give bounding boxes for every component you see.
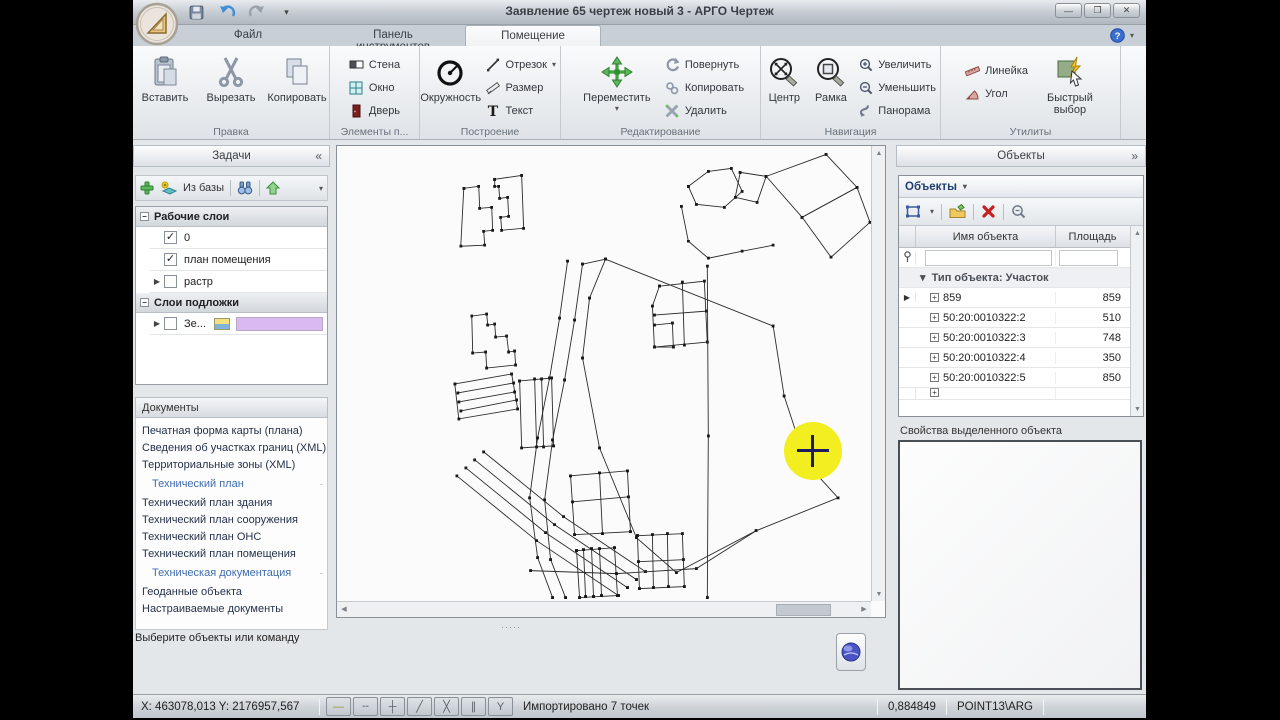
wall-icon [349, 57, 364, 72]
objects-scroll-up[interactable]: ▲ [1131, 226, 1144, 240]
document-item[interactable]: Геоданные объекта [142, 584, 327, 601]
undo-button[interactable] [217, 3, 236, 21]
object-name: 50:20:0010322:2 [943, 312, 1026, 324]
close-button[interactable]: ✕ [1113, 3, 1140, 18]
ribbon-group-nav: Центр Рамка Увеличить Уменьшить [761, 46, 941, 139]
add-from-base-icon[interactable] [160, 181, 177, 196]
scroll-up-arrow[interactable]: ▲ [872, 146, 886, 160]
object-row[interactable]: ▶+859859 [899, 288, 1143, 308]
help-dropdown-icon[interactable]: ▾ [1130, 31, 1134, 40]
edit-object-icon[interactable] [949, 204, 966, 219]
dimension-icon [486, 80, 501, 95]
document-item[interactable]: Технический план помещения [142, 546, 327, 563]
dimension-button[interactable]: Размер [482, 76, 560, 99]
copy-objects-button[interactable]: Копировать [661, 76, 748, 99]
layer-name: Зе... [184, 318, 206, 330]
globe-button[interactable] [836, 633, 866, 671]
circle-button[interactable]: Окружность [420, 49, 482, 104]
angle-button[interactable]: Угол [961, 82, 1032, 105]
door-button[interactable]: Дверь [345, 99, 404, 122]
tab-file[interactable]: Файл [200, 25, 296, 46]
objects-panel: Объекты » Объекты ▾ ▾ Имя объекта Пло [896, 145, 1146, 690]
objects-panel-title: Объекты [997, 150, 1044, 162]
object-group-row[interactable]: ▾ Тип объекта: Участок [899, 268, 1143, 288]
restore-button[interactable]: ❐ [1084, 3, 1111, 18]
copy-icon [281, 52, 313, 92]
object-name: 50:20:0010322:5 [943, 372, 1026, 384]
object-name: 50:20:0010322:3 [943, 332, 1026, 344]
copy-objects-icon [665, 80, 680, 95]
object-name: 859 [943, 292, 961, 304]
zoom-out-button[interactable]: Уменьшить [854, 76, 940, 99]
select-dropdown-icon[interactable]: ▾ [930, 207, 934, 216]
objects-toolbar: ▾ [899, 198, 1143, 226]
cadastral-drawing [337, 146, 872, 601]
zoom-in-icon [858, 57, 873, 72]
screen-background: ▾ Заявление 65 чертеж новый 3 - АРГО Чер… [0, 0, 1280, 720]
ribbon-tab-row: Файл Панель инструментов Помещение ? ▾ [133, 25, 1146, 46]
object-row[interactable]: +50:20:0010322:3748 [899, 328, 1143, 348]
objects-box: Объекты ▾ ▾ Имя объекта Площадь ▾ Тип об… [898, 175, 1144, 417]
command-area: ····· [336, 618, 892, 692]
frame-button[interactable]: Рамка [808, 49, 855, 104]
mode-indicator: POINT13\ARG [953, 701, 1037, 713]
cut-icon [215, 52, 247, 92]
group-label-utils: Утилиты [941, 126, 1120, 138]
frame-icon [815, 52, 847, 92]
rotate-button[interactable]: Повернуть [661, 53, 748, 76]
document-item[interactable]: Настраиваемые документы [142, 601, 327, 618]
svg-text:?: ? [1115, 31, 1121, 42]
group-label-nav: Навигация [761, 126, 940, 138]
document-item[interactable]: Технический план ОНС [142, 529, 327, 546]
filter-name-input[interactable] [925, 250, 1052, 266]
wall-button[interactable]: Стена [345, 53, 404, 76]
window-title: Заявление 65 чертеж новый 3 - АРГО Черте… [253, 4, 1026, 18]
object-area: 748 [1056, 332, 1129, 344]
move-dropdown-icon[interactable]: ▾ [615, 104, 619, 113]
object-area: 859 [1056, 292, 1129, 304]
paste-icon [149, 52, 181, 92]
documents-header[interactable]: Документы [135, 397, 328, 418]
drawing-canvas[interactable]: ▲ ▼ ◀ ▶ [336, 145, 886, 618]
objects-table-header: Имя объекта Площадь [899, 226, 1143, 248]
segment-dropdown-icon[interactable]: ▾ [552, 60, 556, 69]
ruler-button[interactable]: Линейка [961, 59, 1032, 82]
documents-list: Печатная форма карты (плана)Сведения об … [135, 418, 328, 630]
objects-expand-button[interactable]: » [1131, 149, 1138, 163]
ribbon-group-utils: Линейка Угол Быстрый выбор Утилиты [941, 46, 1121, 139]
objects-panel-header: Объекты » [896, 145, 1146, 167]
object-area: 850 [1056, 372, 1129, 384]
expand-plus-icon[interactable]: + [930, 293, 939, 302]
ribbon-group-elements: Стена Окно Дверь Элементы п... [330, 46, 420, 139]
group-label-elements: Элементы п... [330, 126, 419, 138]
copy-button[interactable]: Копировать [265, 49, 329, 104]
layer-row[interactable]: ✓план помещения [150, 249, 327, 271]
app-logo-icon [135, 2, 179, 46]
coordinates-readout: X: 463078,013 Y: 2176957,567 [141, 701, 313, 713]
toolbar-separator [230, 180, 231, 196]
ruler-icon [965, 63, 980, 78]
objects-dropdown-caret: ▾ [963, 182, 967, 191]
minimize-button[interactable]: — [1055, 3, 1082, 18]
expand-plus-icon[interactable]: + [930, 373, 939, 382]
text-icon: T [486, 103, 501, 118]
layer-checkbox[interactable] [164, 275, 177, 288]
tasks-panel: Задачи « Из базы ▾ − Рабочие слои ✓0✓пла… [133, 145, 330, 650]
layer-row[interactable]: ✓0 [150, 227, 327, 249]
status-bar: X: 463078,013 Y: 2176957,567 —╌┼╱╳∥Y Имп… [133, 694, 1146, 718]
snap-toolbar: —╌┼╱╳∥Y [326, 697, 515, 716]
layer-name: 0 [184, 232, 190, 244]
expand-plus-icon[interactable]: + [930, 313, 939, 322]
from-base-button[interactable]: Из базы [183, 182, 224, 194]
group-label-build: Построение [420, 126, 560, 138]
status-message: Импортировано 7 точек [523, 701, 649, 713]
tasks-collapse-button[interactable]: « [315, 149, 322, 163]
ribbon-group-editops: Переместить ▾ Повернуть Копировать Удали… [561, 46, 761, 139]
toolbar-separator [259, 180, 260, 196]
group-label-edit: Правка [133, 126, 329, 138]
snap-mode-button[interactable]: ╱ [407, 697, 432, 716]
snap-mode-button[interactable]: — [326, 697, 351, 716]
scroll-down-arrow[interactable]: ▼ [872, 587, 886, 601]
center-icon [768, 52, 800, 92]
app-window: ▾ Заявление 65 чертеж новый 3 - АРГО Чер… [133, 0, 1146, 718]
underlay-source-icon[interactable] [214, 318, 230, 330]
document-item[interactable]: Печатная форма карты (плана) [142, 423, 327, 440]
document-item[interactable]: Технический план сооружения [142, 512, 327, 529]
document-item[interactable]: Сведения об участках границ (XML) [142, 440, 327, 457]
document-item[interactable]: Территориальные зоны (XML) [142, 457, 327, 474]
group-label-editops: Редактирование [561, 126, 760, 138]
delete-object-icon[interactable] [981, 204, 996, 219]
zoom-in-button[interactable]: Увеличить [854, 53, 940, 76]
angle-icon [965, 86, 980, 101]
ribbon: Вставить Вырезать Копировать Правка [133, 46, 1146, 140]
object-row[interactable]: +50:20:0010322:2510 [899, 308, 1143, 328]
layers-box: − Рабочие слои ✓0✓план помещения▶растр −… [135, 206, 328, 385]
objects-scroll-down[interactable]: ▼ [1131, 402, 1144, 416]
layer-row[interactable]: ▶растр [150, 271, 327, 293]
cut-button[interactable]: Вырезать [199, 49, 263, 104]
filter-row[interactable] [899, 248, 1143, 268]
svg-text:T: T [488, 104, 499, 118]
object-name: 50:20:0010322:4 [943, 352, 1026, 364]
scrollbar-thumb[interactable] [776, 604, 831, 616]
move-button[interactable]: Переместить ▾ [573, 49, 661, 113]
tasks-toolbar: Из базы ▾ [135, 175, 328, 201]
app-menu-button[interactable] [135, 2, 179, 46]
column-area[interactable]: Площадь [1056, 226, 1129, 247]
window-controls: — ❐ ✕ [1055, 3, 1140, 18]
rotate-icon [665, 57, 680, 72]
underlay-layers-header[interactable]: − Слои подложки [136, 293, 327, 313]
object-area: 510 [1056, 312, 1129, 324]
snap-mode-button[interactable]: ┼ [380, 697, 405, 716]
search-binoculars-icon[interactable] [237, 181, 253, 195]
tasks-toolbar-dropdown[interactable]: ▾ [319, 184, 323, 193]
ribbon-group-build: Окружность Отрезок▾ Размер T Текст [420, 46, 561, 139]
zoom-to-object-icon[interactable] [1011, 204, 1026, 219]
select-polygon-icon[interactable] [905, 204, 923, 219]
snap-mode-button[interactable]: ╌ [353, 697, 378, 716]
filter-area-input[interactable] [1059, 250, 1118, 266]
document-item[interactable]: Технический план здания [142, 495, 327, 512]
document-section-header: Техническая документация [142, 563, 327, 584]
door-icon [349, 103, 364, 118]
splitter-handle[interactable]: ····· [501, 622, 521, 632]
collapse-box-icon[interactable]: − [140, 298, 149, 307]
segment-icon [486, 57, 501, 72]
pan-icon [858, 103, 873, 118]
ribbon-group-edit: Вставить Вырезать Копировать Правка [133, 46, 330, 139]
layer-checkbox[interactable] [164, 317, 177, 330]
properties-box [898, 440, 1142, 690]
title-bar: ▾ Заявление 65 чертеж новый 3 - АРГО Чер… [133, 0, 1146, 25]
object-row[interactable]: +50:20:0010322:4350 [899, 348, 1143, 368]
layer-name: план помещения [184, 254, 271, 266]
object-row-partial[interactable]: + [899, 388, 1143, 400]
save-button[interactable] [187, 3, 206, 21]
move-icon [601, 52, 633, 92]
objects-table-body: ▾ Тип объекта: Участок▶+859859+50:20:001… [899, 248, 1143, 400]
add-layer-icon[interactable] [140, 181, 154, 195]
expand-plus-icon[interactable]: + [930, 353, 939, 362]
object-row[interactable]: +50:20:0010322:5850 [899, 368, 1143, 388]
properties-title: Свойства выделенного объекта [900, 425, 1062, 437]
layer-expand-icon[interactable]: ▶ [150, 277, 164, 286]
document-section-header: Технический план [142, 474, 327, 495]
tasks-panel-title: Задачи [212, 150, 251, 162]
horizontal-scrollbar[interactable]: ◀ ▶ [337, 601, 871, 617]
layer-checkbox[interactable]: ✓ [164, 231, 177, 244]
snap-mode-button[interactable]: ∥ [461, 697, 486, 716]
status-hint: Выберите объекты или команду [135, 632, 299, 644]
tab-toolbar[interactable]: Панель инструментов [335, 25, 451, 46]
collapse-box-icon[interactable]: − [140, 212, 149, 221]
center-button[interactable]: Центр [761, 49, 808, 104]
tasks-panel-header: Задачи « [133, 145, 330, 167]
underlay-color-swatch[interactable] [236, 317, 323, 331]
objects-scrollbar[interactable]: ▲ ▼ [1130, 226, 1143, 416]
scale-value: 0,884849 [884, 701, 940, 713]
filter-pin-icon [903, 251, 912, 263]
segment-button[interactable]: Отрезок▾ [482, 53, 560, 76]
help-icon[interactable]: ? [1110, 28, 1125, 43]
layer-checkbox[interactable]: ✓ [164, 253, 177, 266]
zoom-out-icon [858, 80, 873, 95]
snap-mode-button[interactable]: Y [488, 697, 513, 716]
objects-dropdown[interactable]: Объекты ▾ [899, 176, 1143, 198]
save-icon [188, 4, 205, 21]
undo-icon [218, 4, 236, 20]
scroll-left-arrow[interactable]: ◀ [337, 602, 351, 616]
window-button[interactable]: Окно [345, 76, 404, 99]
quick-select-button[interactable]: Быстрый выбор [1040, 49, 1100, 116]
up-arrow-icon[interactable] [266, 181, 280, 195]
circle-icon [435, 52, 467, 92]
object-area: 350 [1056, 352, 1129, 364]
tab-room[interactable]: Помещение [465, 25, 601, 46]
expand-plus-icon[interactable]: + [930, 333, 939, 342]
text-button[interactable]: T Текст [482, 99, 560, 122]
layer-row[interactable]: ▶Зе... [150, 313, 327, 335]
working-layers-header[interactable]: − Рабочие слои [136, 207, 327, 227]
window-icon [349, 80, 364, 95]
layer-expand-icon[interactable]: ▶ [150, 319, 164, 328]
delete-button[interactable]: Удалить [661, 99, 748, 122]
delete-icon [665, 103, 680, 118]
vertical-scrollbar[interactable]: ▲ ▼ [871, 146, 885, 601]
paste-button[interactable]: Вставить [133, 49, 197, 104]
globe-icon [840, 641, 862, 663]
highlight-plus-marker [784, 422, 842, 480]
snap-mode-button[interactable]: ╳ [434, 697, 459, 716]
layer-name: растр [184, 276, 213, 288]
scroll-right-arrow[interactable]: ▶ [857, 602, 871, 616]
quick-select-icon [1054, 52, 1086, 92]
pan-button[interactable]: Панорама [854, 99, 940, 122]
column-name[interactable]: Имя объекта [916, 226, 1056, 247]
